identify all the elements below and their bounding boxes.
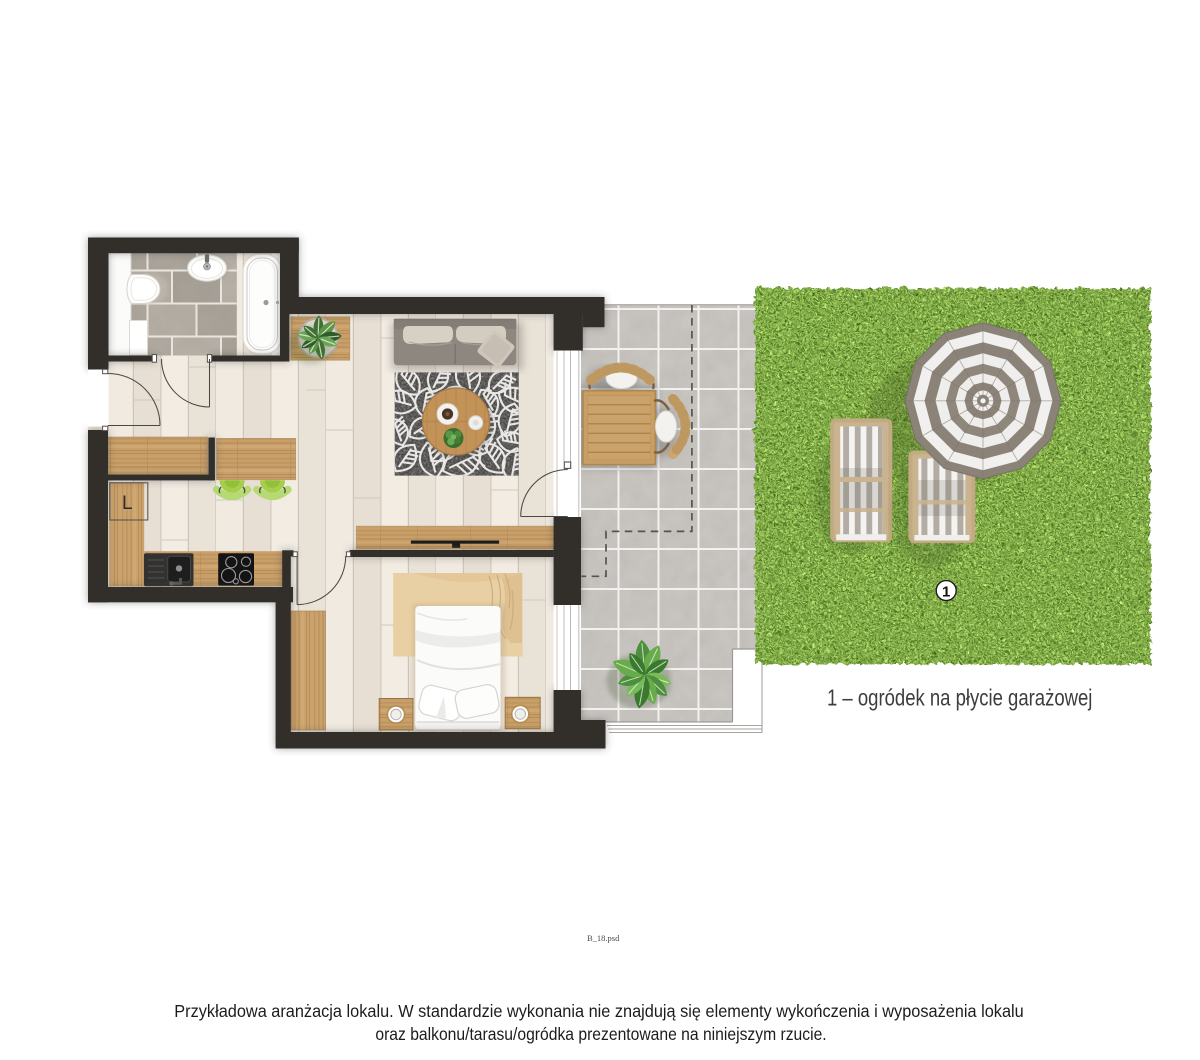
svg-text:B_18.psd: B_18.psd: [587, 933, 620, 943]
svg-text:Przykładowa aranżacja lokalu.: Przykładowa aranżacja lokalu. W standard…: [174, 1001, 1023, 1021]
svg-text:1 – ogródek na płycie garażowe: 1 – ogródek na płycie garażowej: [827, 686, 1092, 712]
svg-text:oraz balkonu/tarasu/ogródka pr: oraz balkonu/tarasu/ogródka prezentowane…: [375, 1024, 826, 1044]
svg-text:L: L: [122, 493, 133, 514]
svg-text:1: 1: [942, 583, 950, 600]
